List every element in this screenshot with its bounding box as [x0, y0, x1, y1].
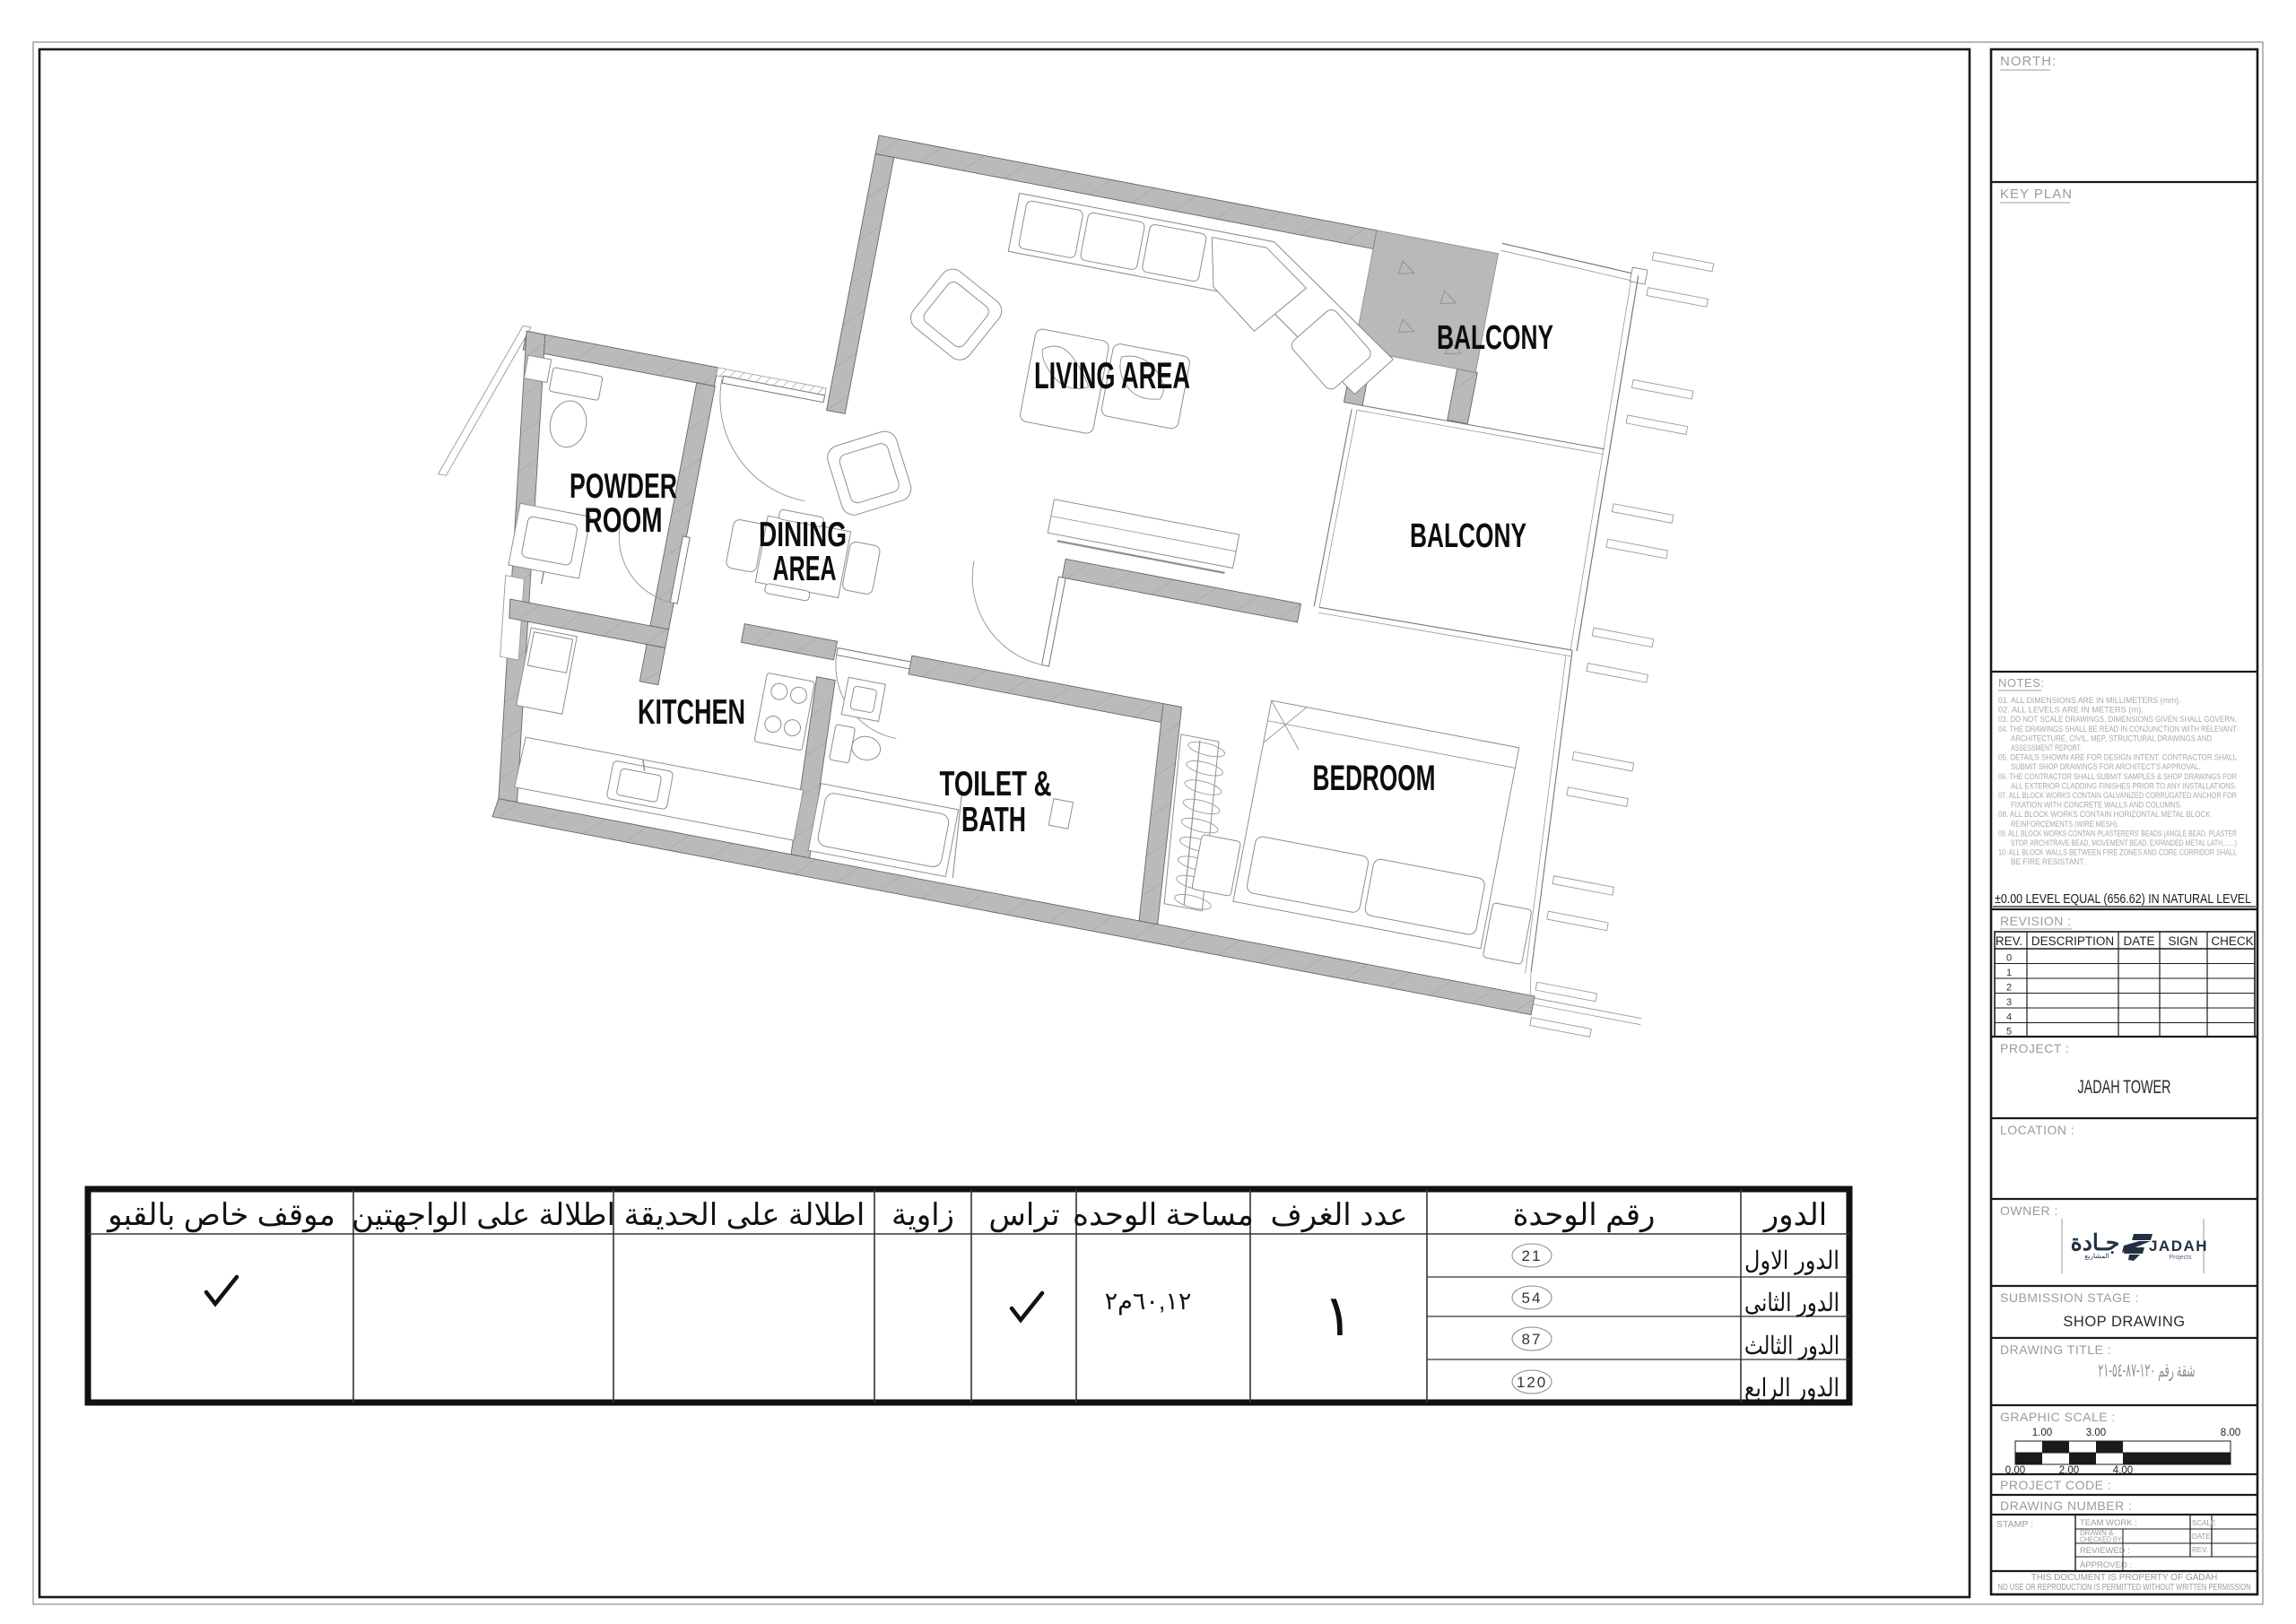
svg-text:03. DO NOT SCALE DRAWINGS,: 03. DO NOT SCALE DRAWINGS, DIMENSIONS GI…	[1998, 715, 2237, 724]
svg-text:2: 2	[2006, 983, 2012, 994]
svg-text:BALCONY: BALCONY	[1410, 517, 1526, 555]
svg-text:REINFORCEMENTS (WIRE MESH).: REINFORCEMENTS (WIRE MESH).	[2011, 820, 2118, 829]
svg-text:OWNER :: OWNER :	[2000, 1203, 2058, 1218]
svg-text:87: 87	[1522, 1331, 1543, 1348]
svg-text:JADAH: JADAH	[2149, 1238, 2208, 1255]
svg-text:4: 4	[2006, 1012, 2012, 1023]
svg-text:زاوية: زاوية	[891, 1198, 954, 1233]
svg-text:APPROVED :: APPROVED :	[2080, 1560, 2132, 1570]
svg-text:DESCRIPTION: DESCRIPTION	[2031, 934, 2114, 948]
svg-text:Projects: Projects	[2169, 1255, 2192, 1261]
svg-text:02. ALL LEVELS ARE IN MET: 02. ALL LEVELS ARE IN METERS (m).	[1998, 706, 2144, 715]
svg-text:NO USE OR REPRODUCTION IS: NO USE OR REPRODUCTION IS PERMITTED WITH…	[1998, 1583, 2251, 1593]
svg-text:NOTES:: NOTES:	[1998, 676, 2044, 690]
svg-text:موقف خاص بالقبو: موقف خاص بالقبو	[106, 1198, 335, 1233]
svg-text:1: 1	[2006, 968, 2012, 978]
svg-text:05. DETAILS SHOWN ARE FOR: 05. DETAILS SHOWN ARE FOR DESIGN INTENT.…	[1998, 753, 2237, 762]
svg-text:KITCHEN: KITCHEN	[638, 693, 745, 732]
svg-text:09. ALL BLOCK WORKS CONTAI: 09. ALL BLOCK WORKS CONTAIN PLASTERERS' …	[1998, 829, 2237, 838]
svg-text:ROOM: ROOM	[585, 501, 663, 540]
svg-text:CHECK: CHECK	[2211, 934, 2253, 948]
svg-text:±0.00 LEVEL EQUAL (656.62) IN: ±0.00 LEVEL EQUAL (656.62) IN NATURAL LE…	[1995, 891, 2251, 907]
svg-text:PROJECT CODE :: PROJECT CODE :	[2000, 1478, 2111, 1492]
svg-text:الدور الثانى: الدور الثانى	[1744, 1289, 1839, 1317]
svg-text:STAMP :: STAMP :	[1996, 1519, 2033, 1530]
svg-text:JADAH TOWER: JADAH TOWER	[2078, 1077, 2171, 1098]
svg-text:POWDER: POWDER	[570, 467, 677, 506]
svg-text:الدور الرابع: الدور الرابع	[1744, 1374, 1839, 1403]
svg-text:DRAWING TITLE :: DRAWING TITLE :	[2000, 1342, 2111, 1357]
svg-text:AREA: AREA	[773, 550, 837, 588]
svg-text:BEDROOM: BEDROOM	[1313, 759, 1436, 798]
svg-text:REV.: REV.	[1996, 934, 2022, 948]
svg-text:٦٠,١٢م٢: ٦٠,١٢م٢	[1105, 1288, 1192, 1316]
svg-text:١: ١	[1323, 1283, 1353, 1348]
svg-text:مساحة الوحده: مساحة الوحده	[1073, 1198, 1254, 1233]
svg-text:06. THE CONTRACTOR SHALL: 06. THE CONTRACTOR SHALL SUBMIT SAMPLES …	[1998, 772, 2237, 781]
svg-text:BALCONY: BALCONY	[1437, 319, 1553, 357]
svg-text:SHOP DRAWING: SHOP DRAWING	[2063, 1314, 2185, 1330]
svg-text:10. ALL BLOCK WALLS BETWEE: 10. ALL BLOCK WALLS BETWEEN FIRE ZONES A…	[1998, 848, 2237, 857]
svg-text:رقم الوحدة: رقم الوحدة	[1513, 1198, 1656, 1233]
svg-text:120: 120	[1517, 1374, 1547, 1391]
svg-text:ALL EXTERIOR CLADDING FINIS: ALL EXTERIOR CLADDING FINISHES PRIOR TO …	[2011, 781, 2237, 790]
svg-text:DATE: DATE	[2192, 1533, 2211, 1541]
svg-text:SIGN: SIGN	[2168, 934, 2197, 948]
svg-text:REVISION :: REVISION :	[2000, 914, 2072, 928]
svg-text:THIS DOCUMENT IS PROPERTY: THIS DOCUMENT IS PROPERTY OF GADAH	[2031, 1573, 2218, 1583]
svg-text:21: 21	[1522, 1247, 1543, 1264]
svg-text:BATH: BATH	[961, 801, 1026, 839]
svg-text:CHECKED BY:: CHECKED BY:	[2080, 1536, 2123, 1544]
svg-text:ARCHITECTURE, CIVIL, MEP, S: ARCHITECTURE, CIVIL, MEP, STRUCTURAL DRA…	[2011, 734, 2212, 743]
svg-text:DINING: DINING	[759, 516, 847, 554]
svg-text:تراس: تراس	[988, 1198, 1059, 1233]
svg-text:SUBMIT SHOP DRAWINGS FOR A: SUBMIT SHOP DRAWINGS FOR ARCHITECT'S APP…	[2011, 762, 2201, 771]
svg-text:SCALE: SCALE	[2192, 1519, 2215, 1527]
svg-text:GRAPHIC SCALE :: GRAPHIC SCALE :	[2000, 1410, 2116, 1424]
svg-text:07. ALL BLOCK WORKS CONTAI: 07. ALL BLOCK WORKS CONTAIN GALVANIZED C…	[1998, 791, 2237, 800]
svg-text:1.00: 1.00	[2032, 1428, 2052, 1438]
svg-text:BE FIRE RESISTANT.: BE FIRE RESISTANT.	[2011, 857, 2085, 866]
svg-text:TEAM WORK :: TEAM WORK :	[2080, 1518, 2137, 1528]
svg-text:5: 5	[2006, 1027, 2012, 1038]
svg-text:8.00: 8.00	[2221, 1428, 2240, 1438]
svg-text:اطلالة على الحديقة: اطلالة على الحديقة	[624, 1198, 865, 1232]
svg-text:LOCATION :: LOCATION :	[2000, 1123, 2074, 1137]
svg-text:الدور الاول: الدور الاول	[1744, 1246, 1839, 1275]
svg-text:REV.: REV.	[2192, 1546, 2208, 1554]
svg-text:PROJECT :: PROJECT :	[2000, 1041, 2069, 1055]
svg-text:0: 0	[2006, 953, 2012, 964]
svg-text:DATE: DATE	[2123, 934, 2154, 948]
svg-text:الدور الثالث: الدور الثالث	[1744, 1332, 1839, 1360]
svg-text:عدد الغرف: عدد الغرف	[1271, 1198, 1408, 1233]
svg-text:شقة رقم ١٢٠-٨٧-٥٤-٢١: شقة رقم ١٢٠-٨٧-٥٤-٢١	[2099, 1360, 2196, 1382]
svg-text:TOILET &: TOILET &	[940, 765, 1052, 803]
svg-text:ASSESSMENT REPORT.: ASSESSMENT REPORT.	[2011, 743, 2082, 752]
svg-text:04. THE DRAWINGS SHALL BE: 04. THE DRAWINGS SHALL BE READ IN CONJUN…	[1998, 725, 2237, 734]
svg-text:01. ALL DIMENSIONS ARE IN: 01. ALL DIMENSIONS ARE IN MILLIMETERS (m…	[1998, 696, 2180, 705]
svg-text:54: 54	[1522, 1290, 1543, 1307]
svg-text:DRAWING NUMBER :: DRAWING NUMBER :	[2000, 1498, 2132, 1513]
svg-text:3.00: 3.00	[2086, 1428, 2106, 1438]
svg-text:0.00: 0.00	[2005, 1465, 2025, 1476]
svg-text:STOP, ARCHITRAVE BEAD, MOVE: STOP, ARCHITRAVE BEAD, MOVEMENT BEAD, EX…	[2011, 838, 2237, 847]
svg-text:3: 3	[2006, 997, 2012, 1008]
svg-text:FIXATION WITH CONCRETE WALL: FIXATION WITH CONCRETE WALLS AND COLUMNS…	[2011, 801, 2182, 810]
svg-text:NORTH:: NORTH:	[2000, 54, 2057, 69]
svg-text:2.00: 2.00	[2059, 1465, 2079, 1476]
svg-text:REVIEWED :: REVIEWED :	[2080, 1546, 2130, 1556]
svg-text:KEY PLAN: KEY PLAN	[2000, 187, 2073, 202]
svg-text:4.00: 4.00	[2113, 1465, 2133, 1476]
svg-text:المشاريع: المشاريع	[2084, 1252, 2109, 1260]
svg-text:LIVING AREA: LIVING AREA	[1034, 354, 1190, 396]
svg-text:الدور: الدور	[1762, 1198, 1828, 1233]
svg-text:اطلالة على الواجهتين: اطلالة على الواجهتين	[352, 1198, 615, 1233]
svg-text:SUBMISSION STAGE :: SUBMISSION STAGE :	[2000, 1290, 2139, 1305]
svg-text:08. ALL BLOCK WORKS CONTAI: 08. ALL BLOCK WORKS CONTAIN HORIZONTAL M…	[1998, 810, 2211, 819]
